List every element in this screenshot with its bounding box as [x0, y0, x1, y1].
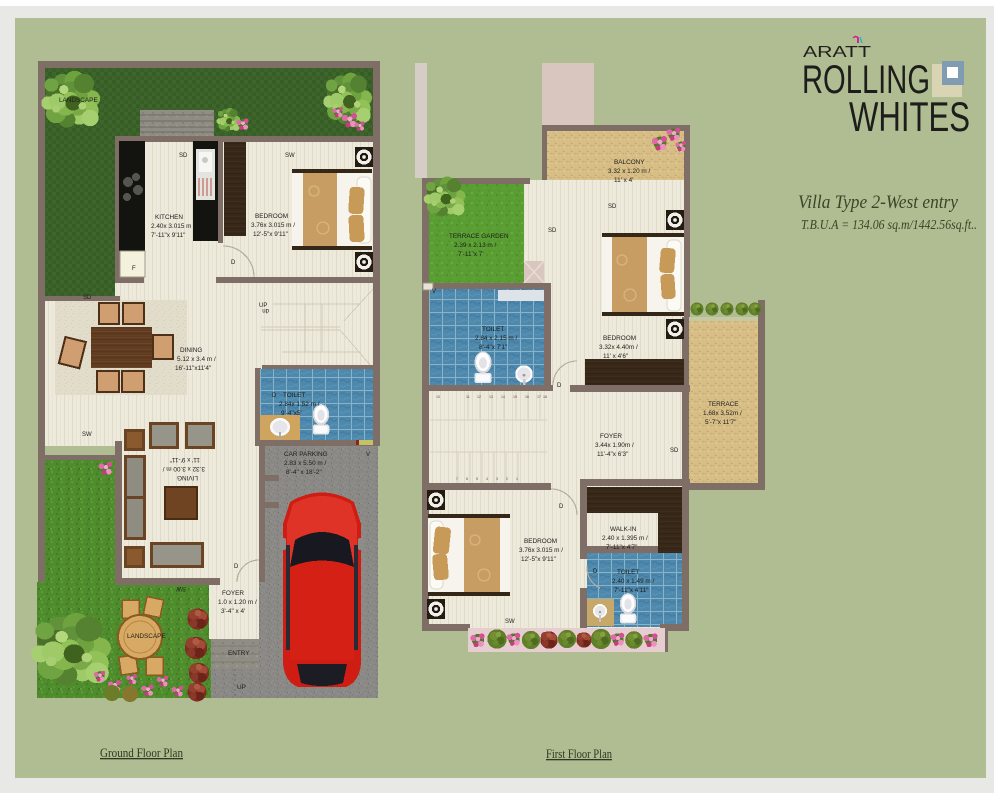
svg-text:BEDROOM: BEDROOM [255, 213, 288, 220]
svg-text:3: 3 [496, 477, 498, 481]
svg-text:D: D [272, 393, 277, 399]
svg-text:5'-7"x 11'7": 5'-7"x 11'7" [705, 419, 736, 426]
svg-text:11' x 9'-11": 11' x 9'-11" [170, 456, 200, 463]
svg-text:D: D [593, 569, 598, 575]
svg-text:dn: dn [262, 307, 269, 313]
svg-text:1: 1 [516, 477, 518, 481]
svg-text:7'-11"x 9'11": 7'-11"x 9'11" [151, 232, 185, 239]
svg-text:3.76x 3.015 m /: 3.76x 3.015 m / [519, 547, 563, 554]
svg-text:D: D [231, 260, 236, 266]
svg-text:4: 4 [486, 477, 488, 481]
svg-text:7'-11"x 4'11": 7'-11"x 4'11" [614, 587, 648, 594]
svg-text:16'-11"x11'4": 16'-11"x11'4" [175, 365, 211, 372]
svg-text:7: 7 [456, 477, 458, 481]
svg-text:10: 10 [436, 395, 440, 399]
svg-text:BEDROOM: BEDROOM [603, 335, 636, 342]
svg-text:SD: SD [179, 153, 188, 159]
svg-text:SD: SD [670, 448, 679, 454]
svg-text:3'-4" x 4': 3'-4" x 4' [221, 608, 245, 615]
svg-text:17: 17 [537, 395, 541, 399]
svg-text:3.32 x 3.00 m /: 3.32 x 3.00 m / [163, 465, 205, 472]
svg-text:11: 11 [466, 395, 470, 399]
svg-text:12: 12 [477, 395, 481, 399]
svg-text:8'-4"x 7'1": 8'-4"x 7'1" [479, 344, 507, 351]
svg-text:LANDSCAPE: LANDSCAPE [59, 97, 98, 104]
svg-text:BEDROOM: BEDROOM [524, 538, 557, 545]
svg-text:2.84x 1.52 m /: 2.84x 1.52 m / [279, 401, 320, 408]
svg-text:16: 16 [525, 395, 529, 399]
svg-text:12'-5"x 9'11": 12'-5"x 9'11" [253, 231, 288, 238]
svg-text:First Floor Plan: First Floor Plan [546, 746, 612, 761]
svg-text:WALK-IN: WALK-IN [610, 526, 637, 533]
svg-text:D: D [234, 564, 239, 570]
svg-text:T.B.U.A = 134.06 sq.m/1442.56s: T.B.U.A = 134.06 sq.m/1442.56sq.ft.. [801, 217, 977, 232]
svg-text:FOYER: FOYER [222, 590, 244, 597]
svg-text:SD: SD [608, 204, 617, 210]
svg-text:7'-11"x 4'7": 7'-11"x 4'7" [606, 544, 637, 551]
svg-text:BALCONY: BALCONY [614, 159, 645, 166]
svg-text:TERRACE GARDEN: TERRACE GARDEN [449, 233, 509, 240]
svg-text:5.12 x 3.4 m /: 5.12 x 3.4 m / [177, 356, 216, 363]
svg-text:TOILET: TOILET [283, 392, 305, 399]
svg-text:SW: SW [176, 585, 186, 591]
svg-text:Ground Floor Plan: Ground Floor Plan [100, 745, 183, 760]
svg-text:FOYER: FOYER [600, 433, 622, 440]
svg-text:UP: UP [237, 684, 246, 691]
svg-text:3.32x 4.40m /: 3.32x 4.40m / [599, 344, 638, 351]
svg-text:2.40 x 1.395 m /: 2.40 x 1.395 m / [602, 535, 648, 542]
svg-text:SW: SW [82, 432, 92, 438]
svg-text:2.40x 3.015 m: 2.40x 3.015 m [151, 223, 192, 230]
svg-text:TERRACE: TERRACE [708, 401, 739, 408]
svg-text:SD: SD [548, 228, 557, 234]
svg-text:2: 2 [506, 477, 508, 481]
svg-text:3.76x 3.015 m /: 3.76x 3.015 m / [251, 222, 295, 229]
svg-text:TOILET: TOILET [617, 569, 639, 576]
svg-text:SW: SW [505, 619, 515, 625]
svg-text:SW: SW [285, 153, 295, 159]
svg-text:ENTRY: ENTRY [228, 650, 250, 657]
svg-text:V: V [366, 452, 370, 458]
svg-text:5: 5 [476, 477, 478, 481]
svg-text:11' x 4'6": 11' x 4'6" [603, 353, 628, 360]
svg-text:2.40 x 1.49 m /: 2.40 x 1.49 m / [612, 578, 654, 585]
svg-text:V: V [432, 289, 436, 295]
svg-text:KITCHEN: KITCHEN [155, 214, 183, 221]
svg-text:18: 18 [543, 395, 547, 399]
svg-text:3.44x 1.90m /: 3.44x 1.90m / [595, 442, 634, 449]
svg-text:TOILET: TOILET [482, 326, 504, 333]
svg-text:8'-4" x 18'-2": 8'-4" x 18'-2" [286, 469, 322, 476]
svg-text:DINING: DINING [180, 347, 202, 354]
svg-text:1.0 x 1.20 m /: 1.0 x 1.20 m / [218, 599, 257, 606]
svg-text:D: D [557, 383, 562, 389]
svg-text:2.83 x 5.50 m /: 2.83 x 5.50 m / [284, 460, 326, 467]
svg-text:WHITES: WHITES [849, 93, 970, 140]
svg-text:D: D [559, 504, 564, 510]
svg-text:2.84 x 2.15 m /: 2.84 x 2.15 m / [475, 335, 517, 342]
svg-text:15: 15 [513, 395, 517, 399]
svg-text:2.39 x 2.13 m /: 2.39 x 2.13 m / [454, 242, 496, 249]
svg-text:12'-5"x 9'11": 12'-5"x 9'11" [521, 556, 556, 563]
svg-text:LIVING: LIVING [177, 474, 198, 481]
svg-text:14: 14 [501, 395, 505, 399]
svg-text:3.32 x 1.20 m /: 3.32 x 1.20 m / [608, 168, 650, 175]
svg-text:9'-4"x5': 9'-4"x5' [281, 410, 302, 417]
svg-text:CAR PARKING: CAR PARKING [284, 451, 328, 458]
svg-text:13: 13 [489, 395, 493, 399]
svg-text:11'-4"x 6'3": 11'-4"x 6'3" [597, 451, 628, 458]
svg-text:1.68x 3.52m /: 1.68x 3.52m / [703, 410, 742, 417]
svg-text:LANDSCAPE: LANDSCAPE [127, 633, 166, 640]
svg-text:6: 6 [466, 477, 468, 481]
svg-text:F: F [132, 266, 136, 272]
svg-text:Villa Type 2-West entry: Villa Type 2-West entry [798, 192, 959, 213]
svg-text:SD: SD [83, 295, 92, 301]
svg-text:11' x 4': 11' x 4' [614, 177, 633, 184]
svg-text:7'-11"x 7': 7'-11"x 7' [458, 251, 484, 258]
